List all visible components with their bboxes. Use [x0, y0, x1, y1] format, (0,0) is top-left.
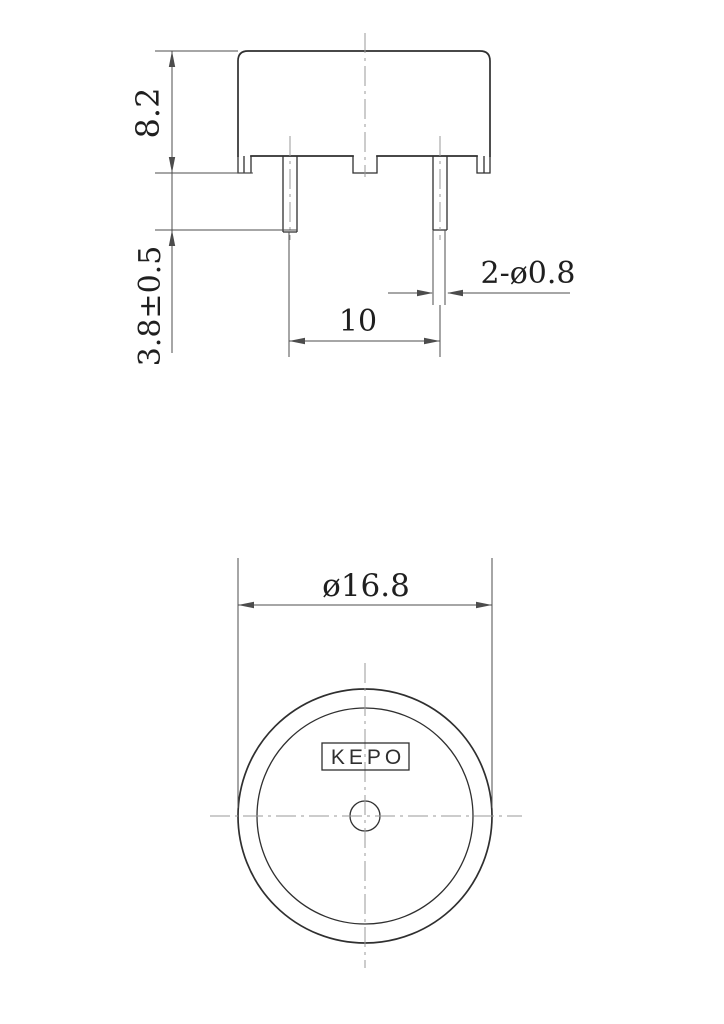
- arrow-up-icon: [169, 230, 175, 246]
- arrow-left-icon: [238, 602, 254, 608]
- arrow-left-icon: [447, 290, 463, 296]
- bottom-view: ø16.8 KEPO: [210, 558, 522, 968]
- dim-lead-length-label: 3.8±0.5: [133, 246, 168, 367]
- arrow-right-icon: [476, 602, 492, 608]
- dim-height-label: 8.2: [129, 88, 167, 139]
- dimension-height: 8.2 3.8±0.5: [129, 51, 297, 366]
- brand-label: KEPO: [331, 746, 405, 769]
- dim-diameter-label: ø16.8: [322, 568, 410, 604]
- drawing-canvas: 8.2 3.8±0.5 10 2-ø0.8: [0, 0, 724, 1024]
- side-view: 8.2 3.8±0.5 10 2-ø0.8: [129, 33, 576, 366]
- left-foot: [238, 156, 251, 173]
- brand-label-box: KEPO: [322, 743, 409, 770]
- arrow-right-icon: [424, 338, 440, 344]
- arrow-right-icon: [417, 290, 433, 296]
- dim-pin-spacing-label: 10: [339, 304, 377, 339]
- technical-drawing-page: 8.2 3.8±0.5 10 2-ø0.8: [0, 0, 724, 1024]
- arrow-left-icon: [289, 338, 305, 344]
- dim-pin-diameter-label: 2-ø0.8: [481, 256, 576, 291]
- right-foot: [477, 156, 490, 173]
- dimension-pin-diameter: 2-ø0.8: [388, 256, 576, 296]
- arrow-down-icon: [169, 157, 175, 173]
- arrow-up-icon: [169, 51, 175, 67]
- buzzer-body-outline: [238, 51, 490, 156]
